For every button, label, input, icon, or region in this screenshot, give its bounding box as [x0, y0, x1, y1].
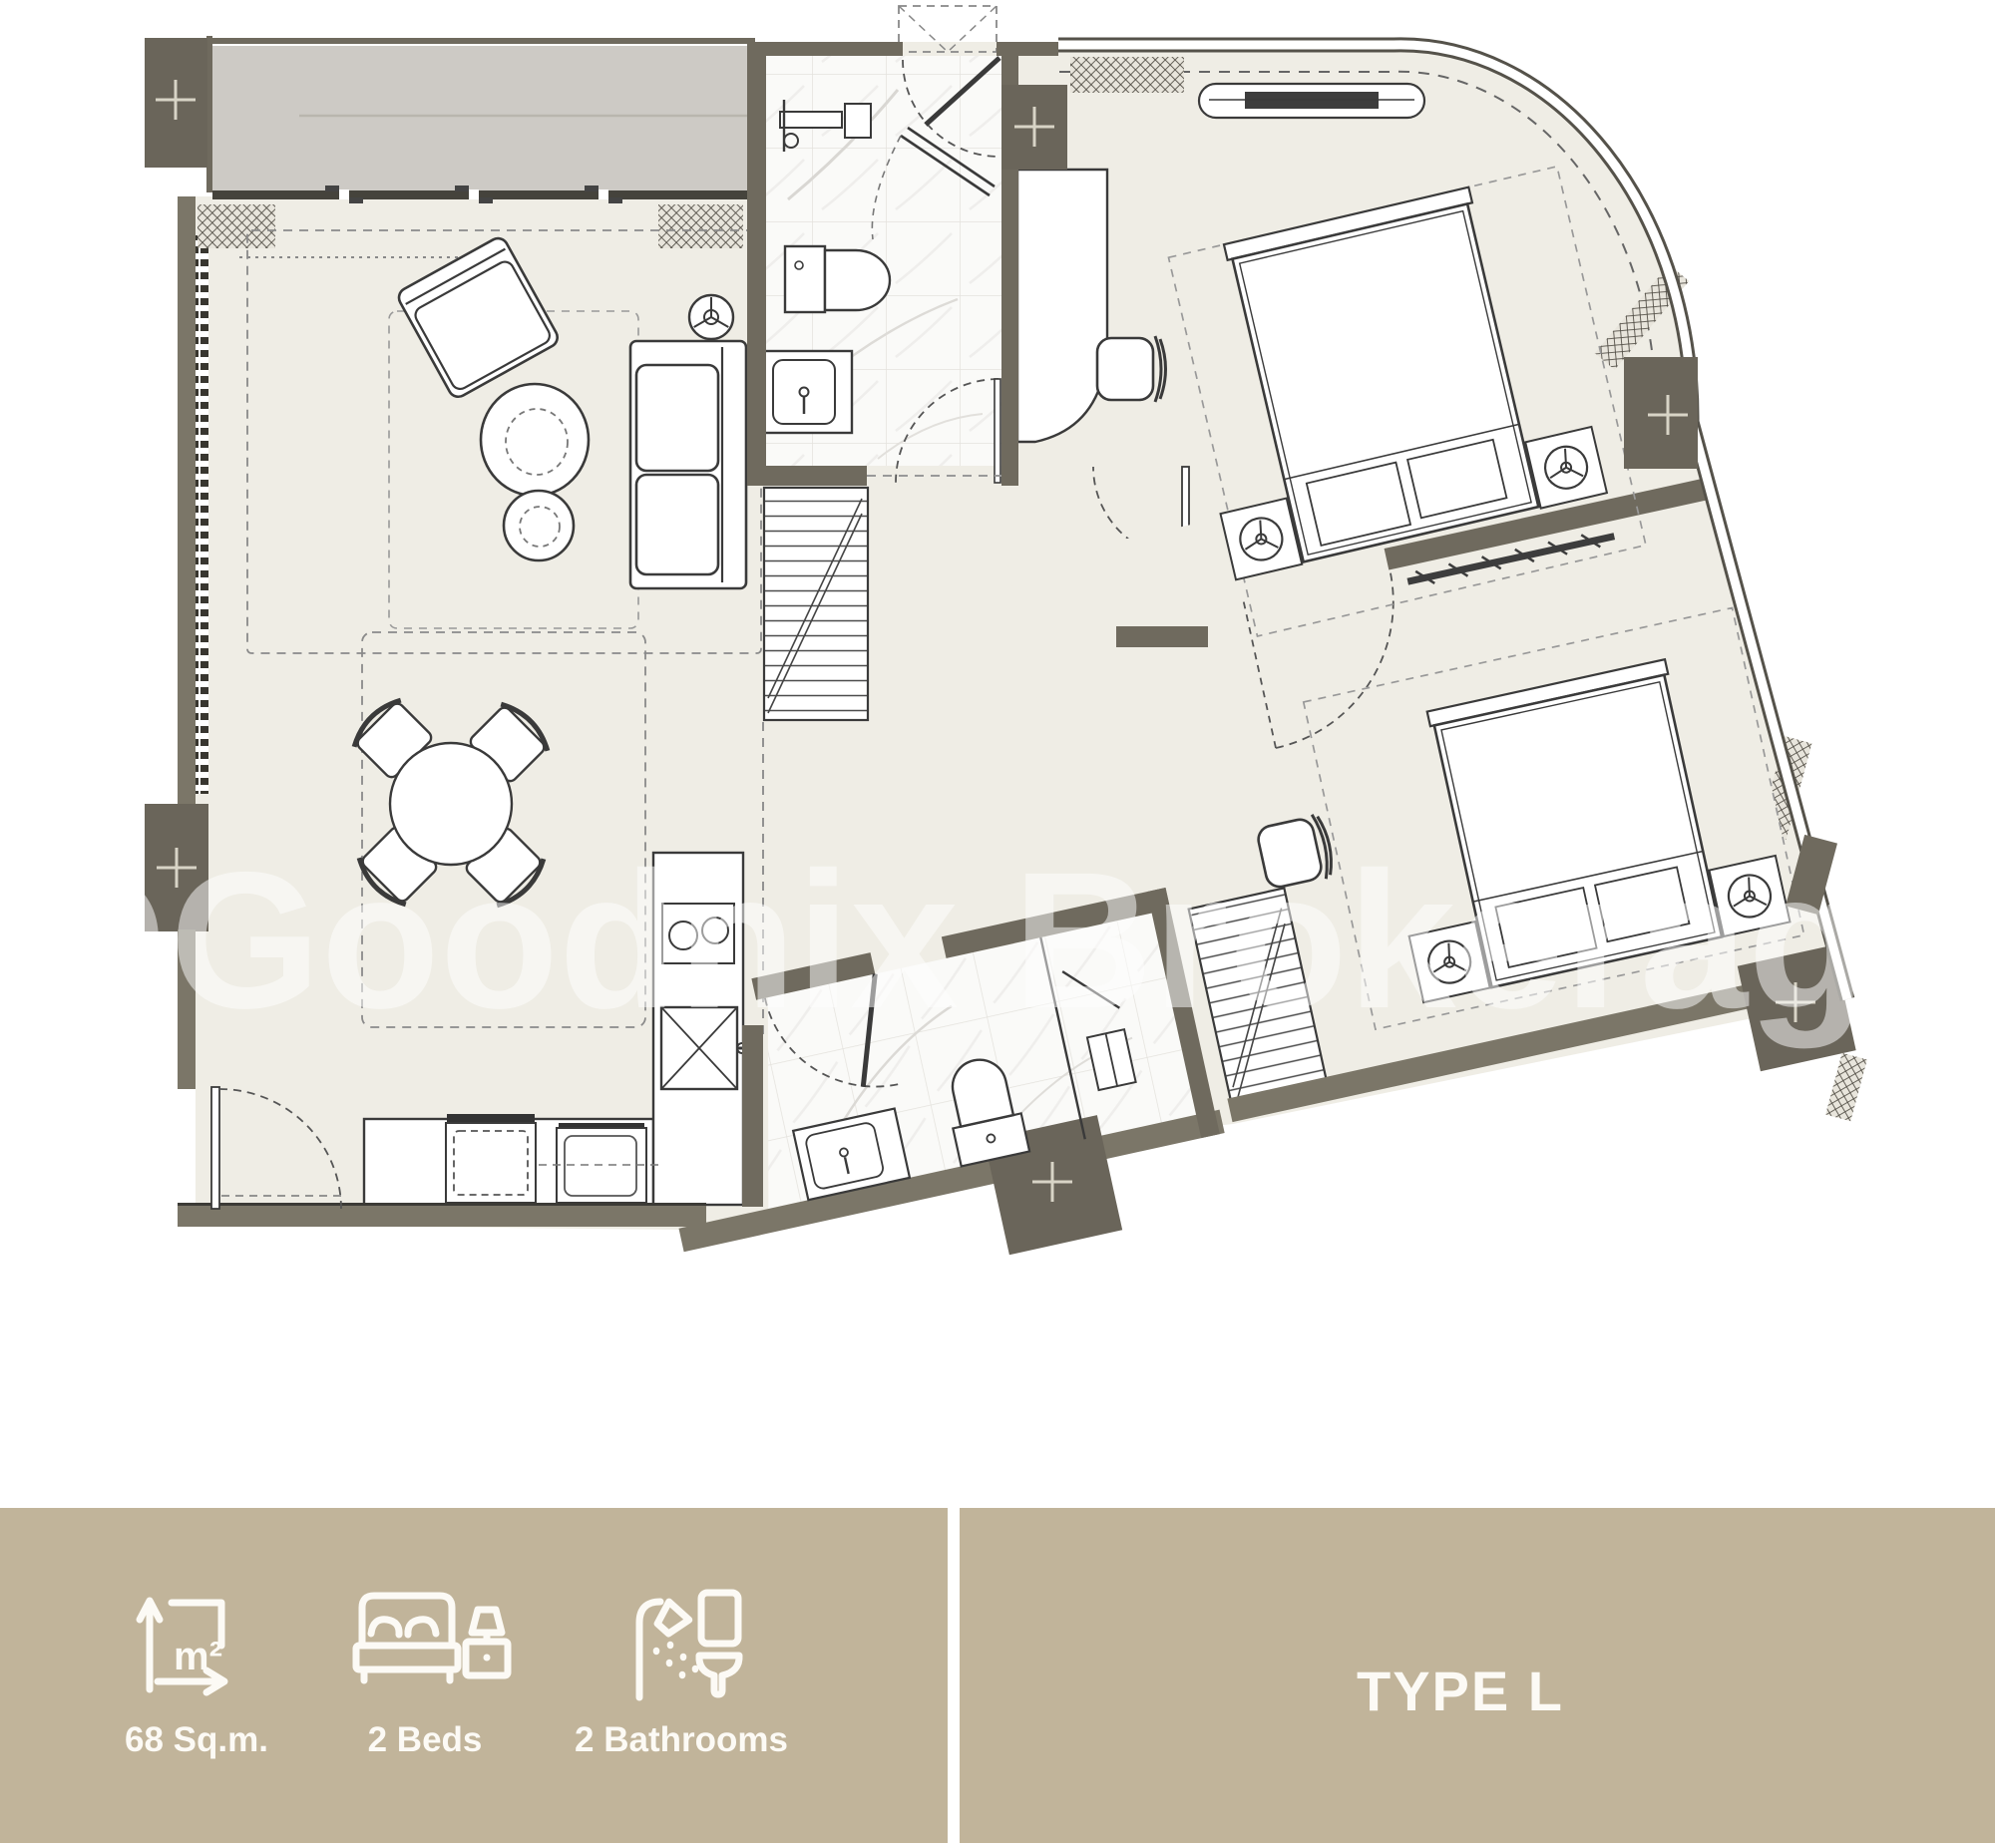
- svg-text:2 Beds: 2 Beds: [368, 1720, 483, 1759]
- svg-text:68 Sq.m.: 68 Sq.m.: [125, 1720, 268, 1759]
- svg-text:@Goodnix Brokerage: @Goodnix Brokerage: [0, 832, 1975, 1049]
- svg-text:TYPE L: TYPE L: [1357, 1660, 1564, 1722]
- svg-text:m²: m²: [174, 1635, 222, 1678]
- svg-text:2 Bathrooms: 2 Bathrooms: [575, 1720, 788, 1759]
